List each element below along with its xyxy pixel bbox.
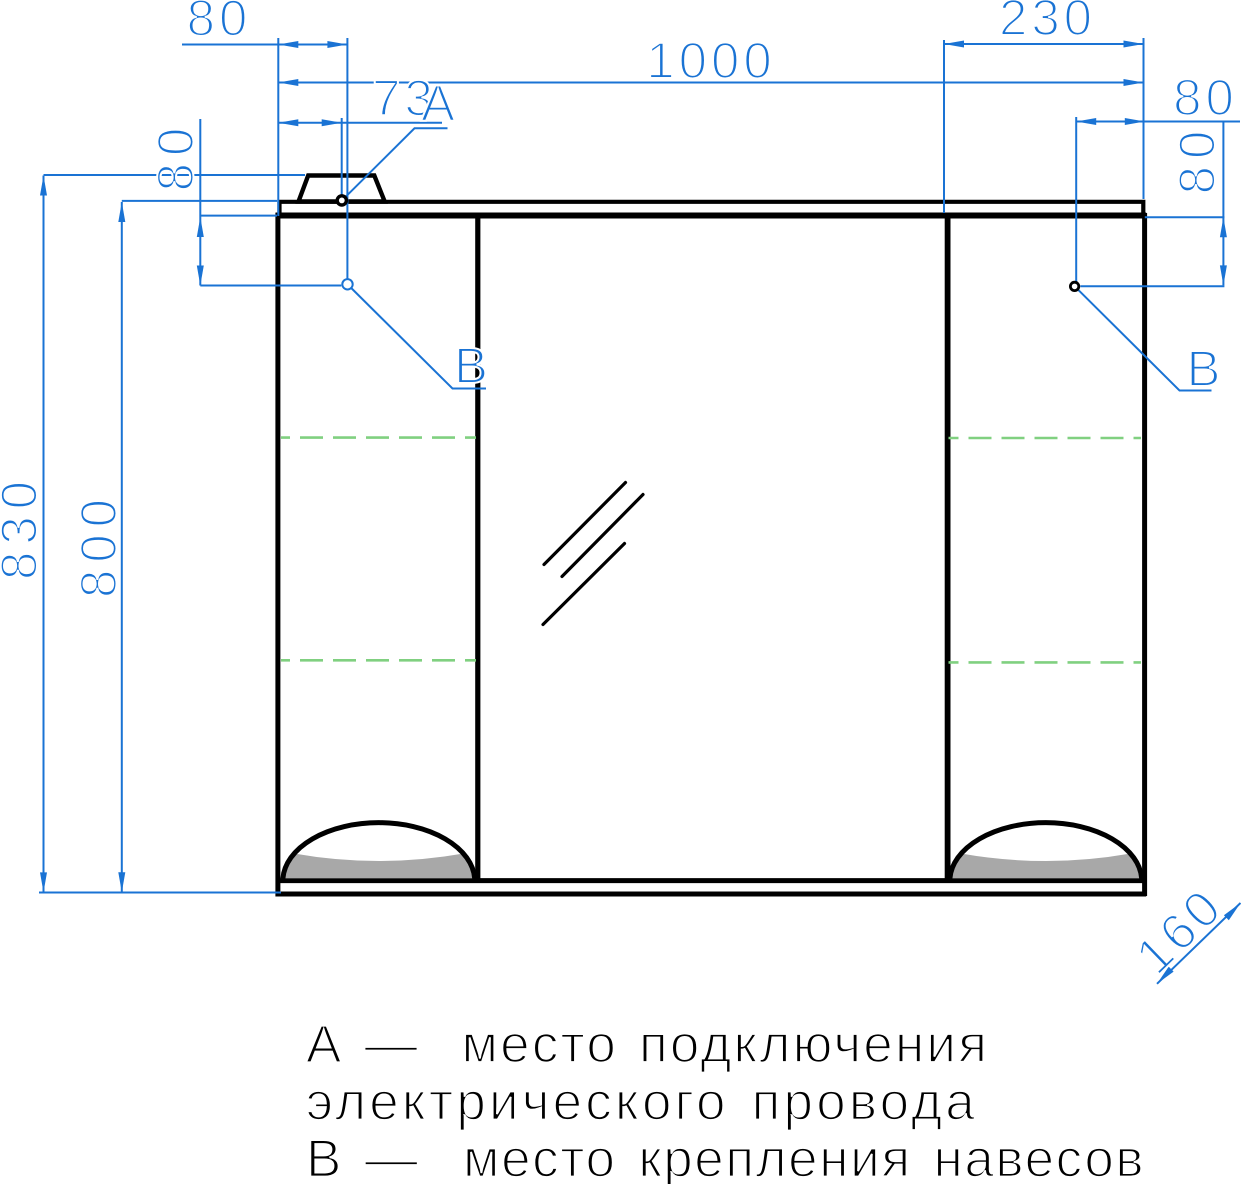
svg-text:В — место крепления навесов: В — место крепления навесов <box>306 1130 1145 1184</box>
svg-text:830: 830 <box>0 474 48 580</box>
svg-text:А — место подключения: А — место подключения <box>306 1015 989 1074</box>
svg-text:80: 80 <box>187 0 252 47</box>
svg-text:230: 230 <box>999 0 1096 46</box>
svg-text:1000: 1000 <box>646 32 775 89</box>
svg-text:800: 800 <box>70 492 127 598</box>
svg-text:B: B <box>1186 340 1224 397</box>
svg-text:A: A <box>421 75 459 132</box>
svg-text:80: 80 <box>1169 124 1226 195</box>
svg-text:B: B <box>454 337 492 394</box>
svg-text:электрического провода: электрического провода <box>306 1073 978 1132</box>
svg-text:80: 80 <box>1173 69 1238 126</box>
svg-text:80: 80 <box>147 121 204 192</box>
